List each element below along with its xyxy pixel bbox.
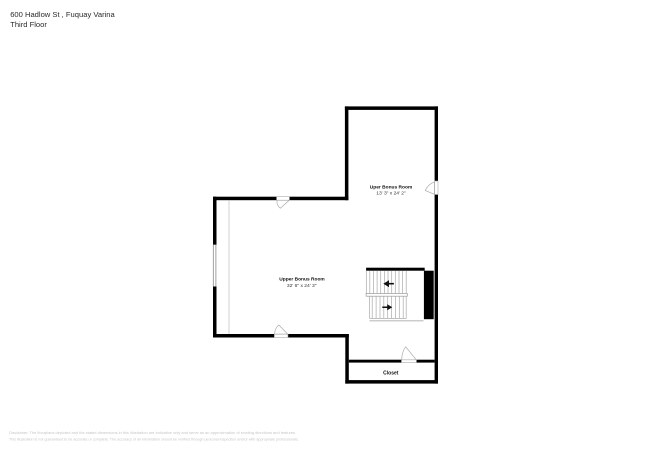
svg-text:13' 3" x 24' 2": 13' 3" x 24' 2" xyxy=(376,191,406,197)
svg-text:Uper Bonus Room: Uper Bonus Room xyxy=(370,184,413,190)
svg-text:This illustration is not guara: This illustration is not guaranteed to b… xyxy=(9,437,299,441)
svg-text:Closet: Closet xyxy=(383,370,399,376)
svg-text:32' 6" x 24' 3": 32' 6" x 24' 3" xyxy=(287,283,317,289)
svg-text:Third Floor: Third Floor xyxy=(10,20,47,29)
svg-text:Upper Bonus Room: Upper Bonus Room xyxy=(279,277,324,283)
svg-text:Disclaimer: The floorplans de: Disclaimer: The floorplans depicted and … xyxy=(9,430,296,435)
svg-text:600 Hadlow St , Fuquay Varina: 600 Hadlow St , Fuquay Varina xyxy=(10,10,115,19)
